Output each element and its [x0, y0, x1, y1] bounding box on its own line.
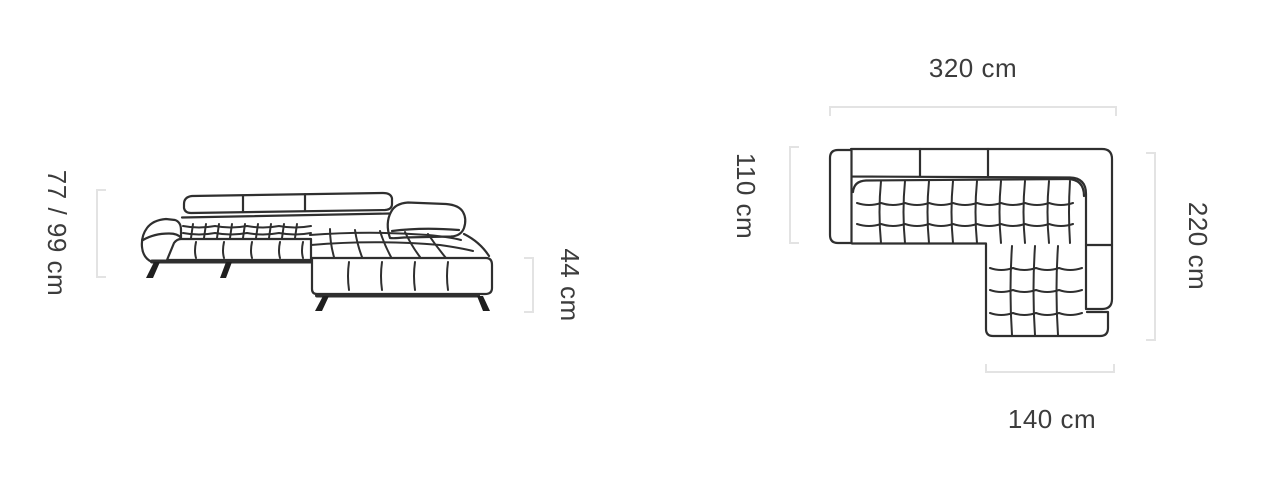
dimension-label-depth: 110 cm — [733, 153, 759, 239]
sofa-front-view-drawing — [142, 193, 492, 311]
bracket-height — [97, 190, 106, 277]
dimension-label-length: 220 cm — [1185, 202, 1211, 290]
dimension-label-height: 77 / 99 cm — [44, 170, 70, 296]
dimension-label-width: 320 cm — [929, 55, 1017, 81]
bracket-seat-height — [524, 258, 533, 312]
bracket-width — [830, 107, 1116, 116]
sofa-dimension-diagram: 77 / 99 cm 44 cm 320 cm 110 cm 220 cm 14… — [0, 0, 1280, 490]
sofa-top-view-drawing — [830, 149, 1112, 336]
bracket-chaise-width — [986, 364, 1114, 372]
dimension-label-seat-height: 44 cm — [557, 248, 583, 321]
bracket-length — [1146, 153, 1155, 340]
dimension-label-chaise-width: 140 cm — [1008, 406, 1096, 432]
bracket-depth — [790, 147, 799, 243]
